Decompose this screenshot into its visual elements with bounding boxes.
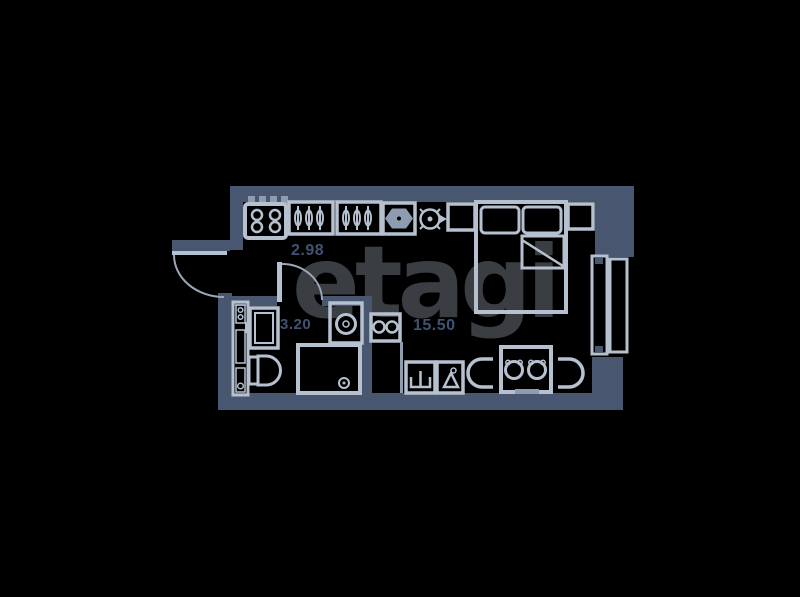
stool <box>515 389 539 394</box>
nightstand-left <box>448 204 475 230</box>
washer-body <box>330 303 362 343</box>
sink-tap-icon <box>411 371 430 387</box>
floor-plan-canvas: etagi <box>0 0 800 597</box>
window-end-cap <box>595 258 603 264</box>
utility-shaft <box>233 302 248 395</box>
sink-basin <box>255 313 273 343</box>
floor-plan-drawing <box>0 0 800 597</box>
blanket-fold-line <box>522 240 563 266</box>
valve-icon <box>238 383 244 389</box>
wall-bottom-right-block <box>592 357 623 410</box>
stove-body <box>245 204 286 238</box>
wardrobe-1 <box>289 202 333 234</box>
entry-door <box>172 251 227 297</box>
window-frame <box>592 256 607 354</box>
valve-icon <box>238 315 243 320</box>
shaft-duct <box>236 330 245 363</box>
chair-left <box>468 359 493 387</box>
stove <box>245 196 288 238</box>
hexagon-cabinet <box>383 203 415 234</box>
dining-table <box>501 347 551 394</box>
burner-icon <box>252 210 262 220</box>
shower-tray <box>298 345 360 393</box>
area-label-hallway: 2.98 <box>291 242 324 260</box>
window <box>592 256 627 354</box>
washer-drum-center <box>343 321 349 327</box>
entry-door-swing-arc <box>174 255 224 297</box>
hexagon-center-dot <box>397 217 401 221</box>
fan-blade <box>420 209 423 212</box>
wall-entry-stub <box>230 186 243 250</box>
chair-right <box>558 359 583 387</box>
burner-icon <box>387 322 398 333</box>
double-bed <box>476 202 566 312</box>
sink-tap <box>245 322 251 333</box>
shower <box>298 345 360 393</box>
bathroom-sink <box>245 308 278 348</box>
area-label-bathroom: 3.20 <box>280 316 311 333</box>
fan-blade <box>437 209 440 212</box>
washing-machine <box>330 303 362 343</box>
fan-hub <box>428 217 433 222</box>
burner-icon <box>270 210 280 220</box>
area-label-living-room: 15.50 <box>413 317 456 335</box>
pillow <box>481 207 519 233</box>
wardrobe-2 <box>337 202 381 234</box>
kitchen-hob <box>371 314 400 341</box>
pillow <box>523 207 561 233</box>
shower-drain-dot <box>343 382 346 385</box>
valve-icon <box>238 308 243 313</box>
ventilation-fan-icon <box>420 209 447 229</box>
washer-drum-icon <box>337 315 356 334</box>
fan-pointer <box>440 215 447 223</box>
bathroom-door <box>277 262 322 302</box>
table-top <box>501 347 551 392</box>
toilet-bowl <box>258 356 281 385</box>
burner-icon <box>270 222 280 232</box>
fan-blade <box>420 226 423 229</box>
wall-entry-header <box>172 240 230 251</box>
toilet <box>249 356 281 385</box>
burner-icon <box>374 322 385 333</box>
kitchen-cabinet-sink <box>406 362 435 393</box>
kettle-lid <box>451 368 456 373</box>
wall-top-right-block <box>595 186 634 257</box>
kettle-icon <box>444 373 458 387</box>
nightstand-right <box>568 204 593 229</box>
bathroom-door-swing-arc <box>282 264 322 300</box>
window-sill <box>610 259 627 352</box>
burner-icon <box>252 222 262 232</box>
wall-left <box>218 293 232 410</box>
entry-door-leaf <box>172 251 227 255</box>
counter-edge <box>400 342 403 393</box>
wall-bottom <box>218 393 623 410</box>
fan-blade <box>437 226 440 229</box>
kitchen-cabinet-kettle <box>437 362 463 393</box>
bathroom-door-leaf <box>277 262 282 302</box>
window-end-cap <box>595 346 603 352</box>
